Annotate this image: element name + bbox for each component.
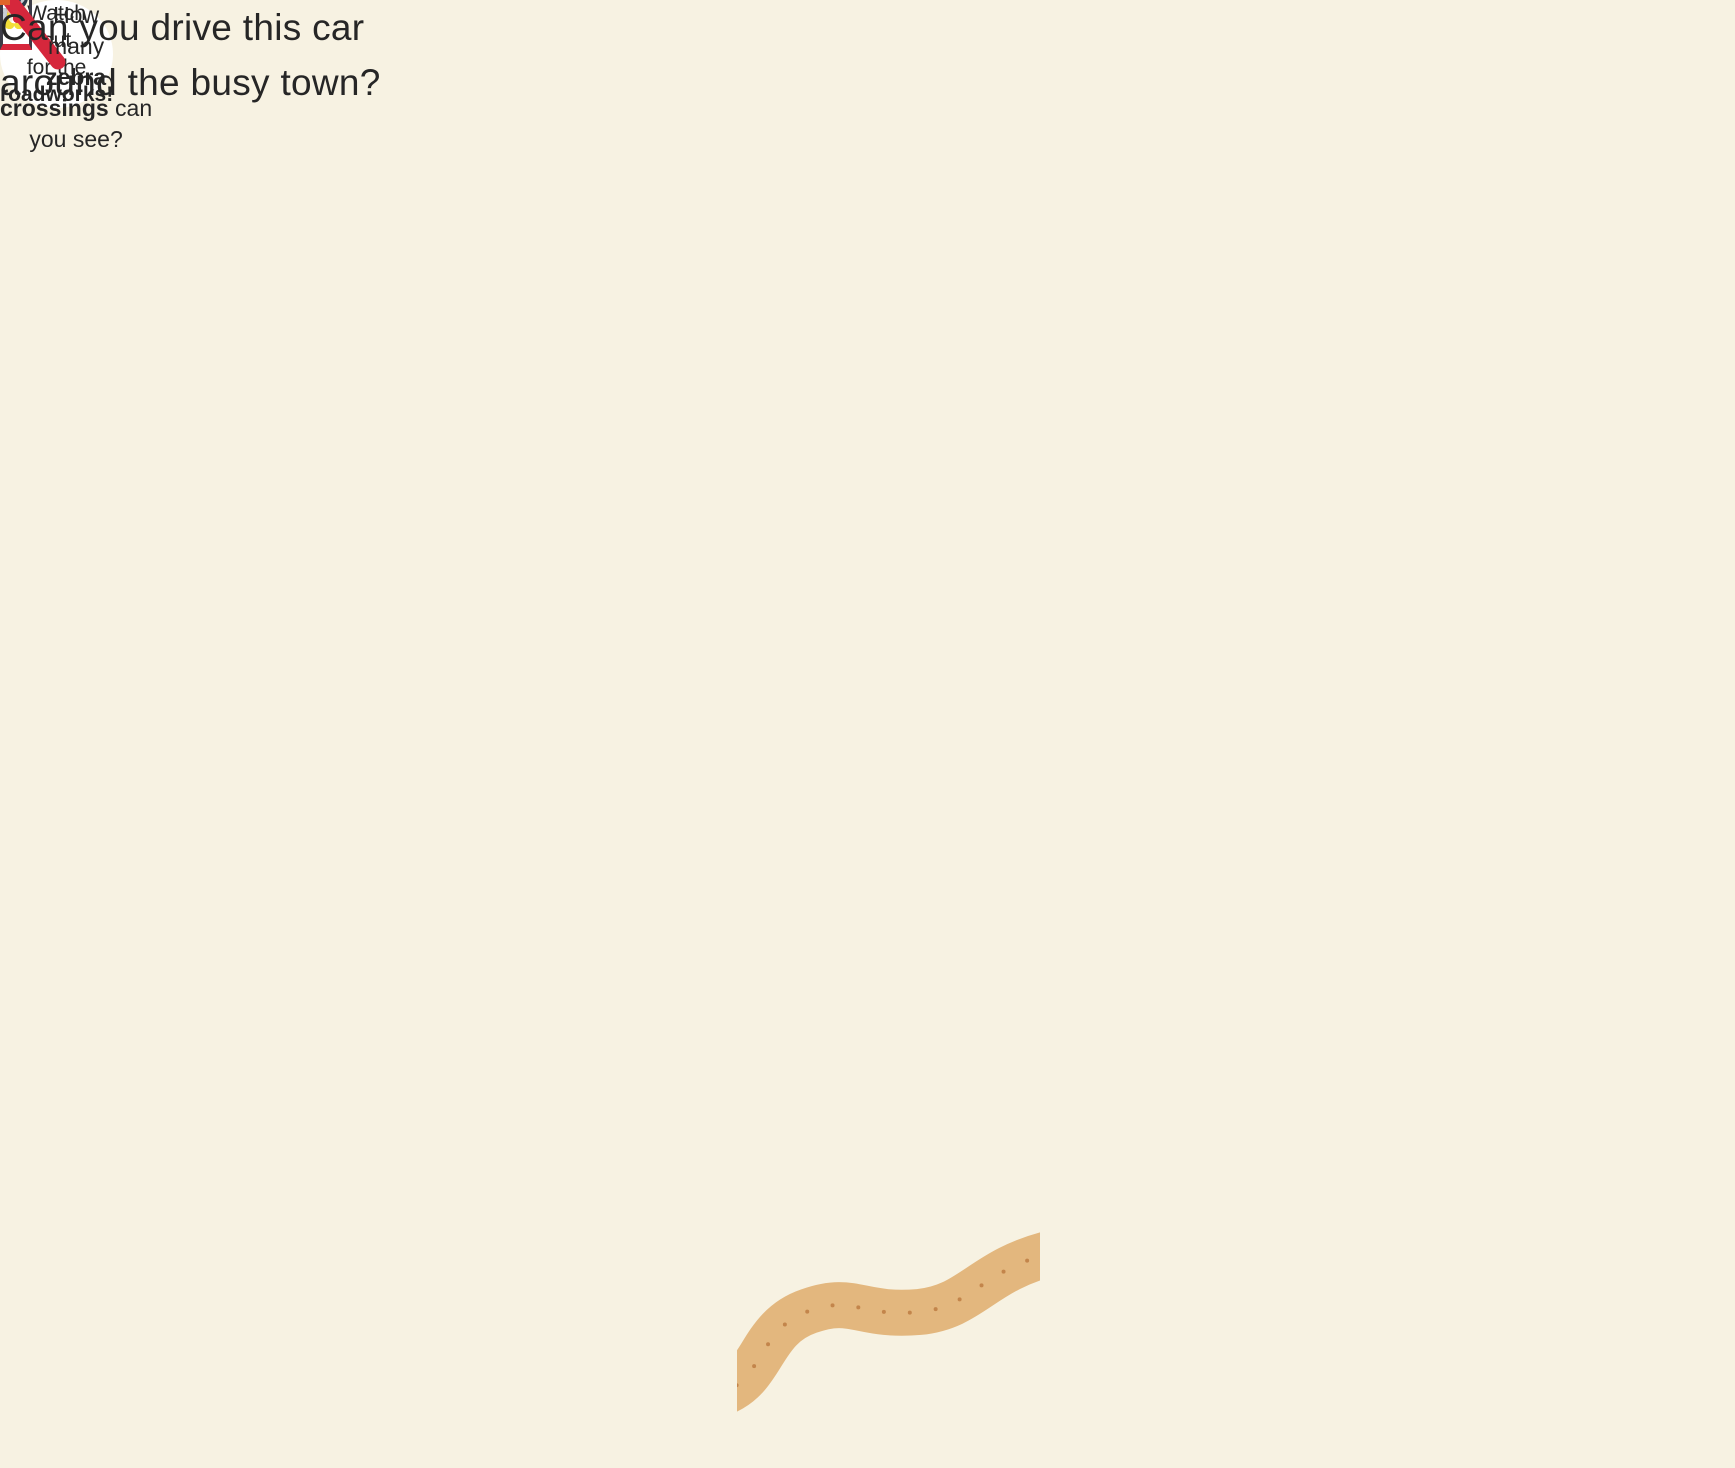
zebra-question-line-2: many: [0, 31, 152, 62]
zebra-question-line-5: you see?: [0, 124, 152, 155]
zebra-question: How many zebra crossings can you see?: [0, 0, 152, 155]
town-scene: Watch out for the roadworks!: [0, 0, 1735, 1468]
zebra-question-line-1: How: [0, 0, 152, 31]
zebra-question-line-3: zebra: [0, 62, 152, 93]
zebra-question-line-4: crossings can: [0, 93, 152, 124]
park-path: [737, 1215, 1040, 1468]
